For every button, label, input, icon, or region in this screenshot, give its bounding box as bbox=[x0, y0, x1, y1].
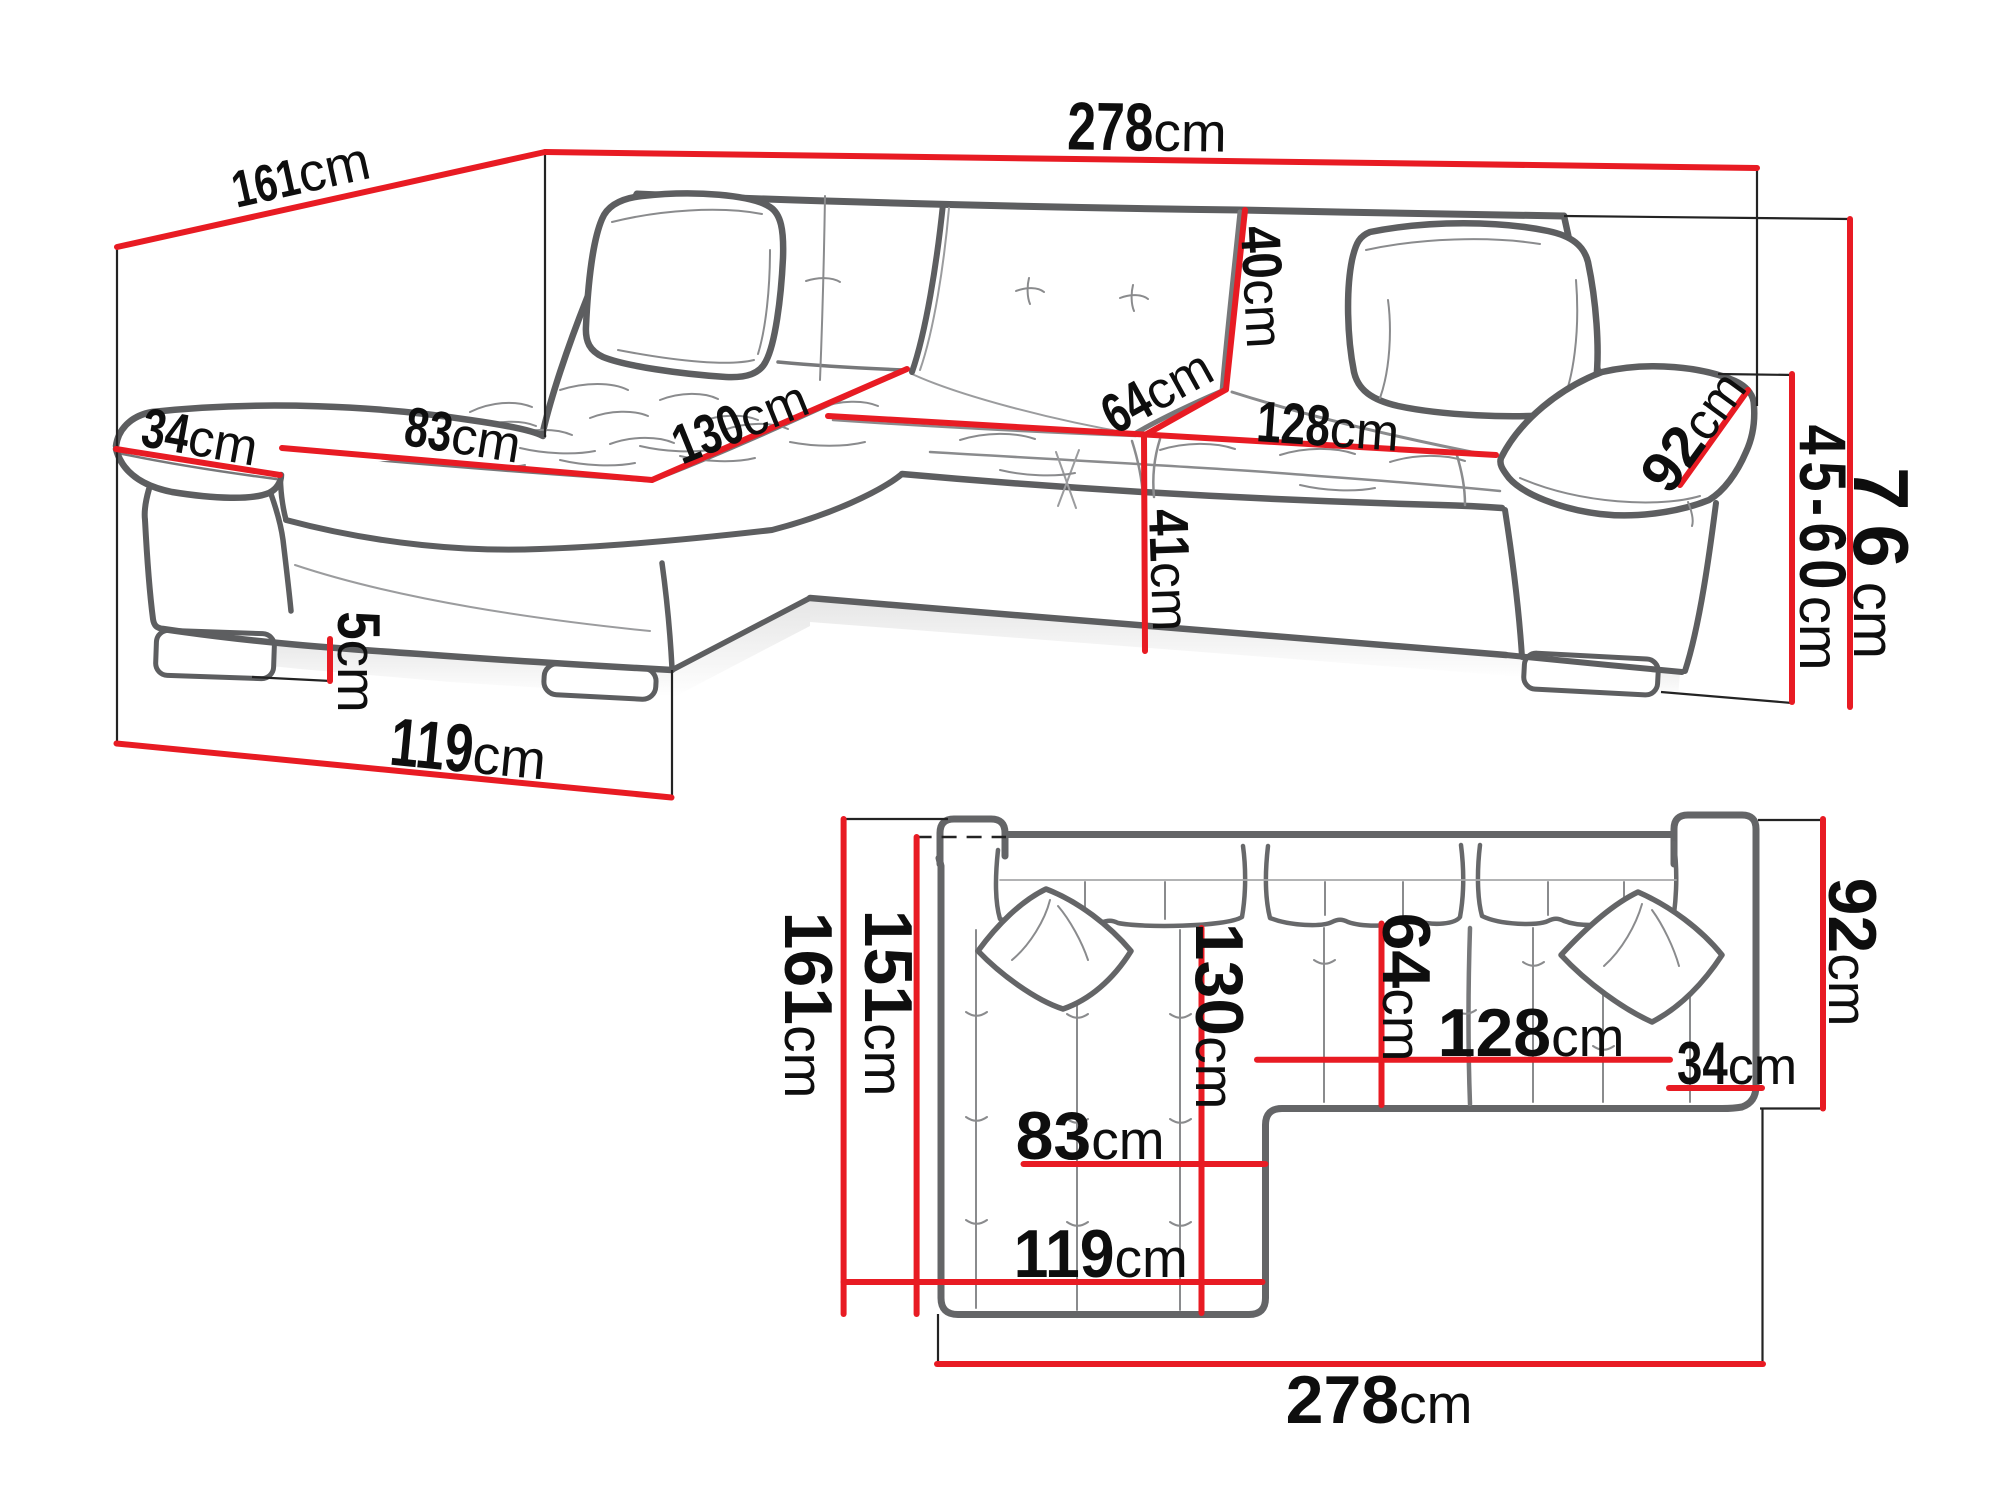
svg-text:cm: cm bbox=[1817, 953, 1879, 1026]
svg-text:cm: cm bbox=[1371, 988, 1433, 1061]
svg-text:278: 278 bbox=[1067, 87, 1154, 165]
svg-text:cm: cm bbox=[1139, 561, 1199, 632]
svg-text:41: 41 bbox=[1136, 508, 1200, 563]
svg-text:cm: cm bbox=[1728, 1038, 1797, 1096]
svg-text:151: 151 bbox=[850, 910, 926, 1023]
svg-text:45-60: 45-60 bbox=[1786, 425, 1860, 596]
svg-text:161: 161 bbox=[770, 912, 846, 1025]
svg-text:cm: cm bbox=[326, 640, 388, 713]
svg-text:92: 92 bbox=[1814, 878, 1890, 954]
svg-text:cm: cm bbox=[447, 407, 525, 475]
svg-text:cm: cm bbox=[1788, 596, 1851, 671]
svg-text:cm: cm bbox=[1232, 277, 1294, 349]
svg-text:5: 5 bbox=[325, 611, 392, 639]
svg-text:cm: cm bbox=[1184, 1036, 1246, 1109]
svg-text:cm: cm bbox=[1399, 1373, 1472, 1435]
svg-text:130: 130 bbox=[1181, 923, 1257, 1036]
svg-text:cm: cm bbox=[1551, 1006, 1624, 1068]
svg-text:119: 119 bbox=[387, 703, 477, 787]
svg-text:128: 128 bbox=[1255, 388, 1333, 458]
svg-text:119: 119 bbox=[1014, 1216, 1115, 1292]
svg-text:40: 40 bbox=[1228, 224, 1293, 280]
svg-text:cm: cm bbox=[184, 409, 262, 478]
svg-text:cm: cm bbox=[773, 1025, 835, 1098]
svg-text:83: 83 bbox=[1016, 1098, 1092, 1174]
svg-text:34: 34 bbox=[1677, 1031, 1728, 1097]
svg-text:64: 64 bbox=[1368, 913, 1444, 989]
svg-text:cm: cm bbox=[1091, 1109, 1164, 1171]
svg-text:cm: cm bbox=[853, 1023, 915, 1096]
svg-text:278: 278 bbox=[1286, 1362, 1399, 1438]
svg-text:cm: cm bbox=[1115, 1227, 1188, 1289]
svg-text:cm: cm bbox=[470, 723, 549, 792]
svg-text:128: 128 bbox=[1438, 995, 1551, 1071]
svg-text:cm: cm bbox=[1328, 400, 1401, 463]
svg-text:cm: cm bbox=[1153, 101, 1227, 164]
